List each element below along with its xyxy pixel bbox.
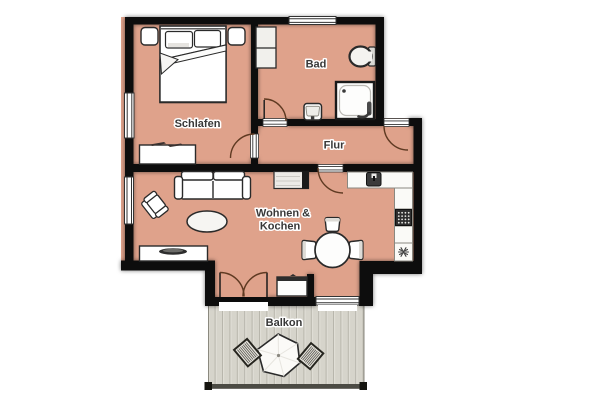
svg-text:Bad: Bad (306, 59, 327, 71)
svg-text:Balkon: Balkon (266, 317, 303, 329)
svg-text:Flur: Flur (324, 140, 345, 152)
svg-text:Kochen: Kochen (260, 221, 301, 233)
svg-text:Wohnen &: Wohnen & (256, 208, 310, 220)
svg-text:Schlafen: Schlafen (175, 118, 221, 130)
